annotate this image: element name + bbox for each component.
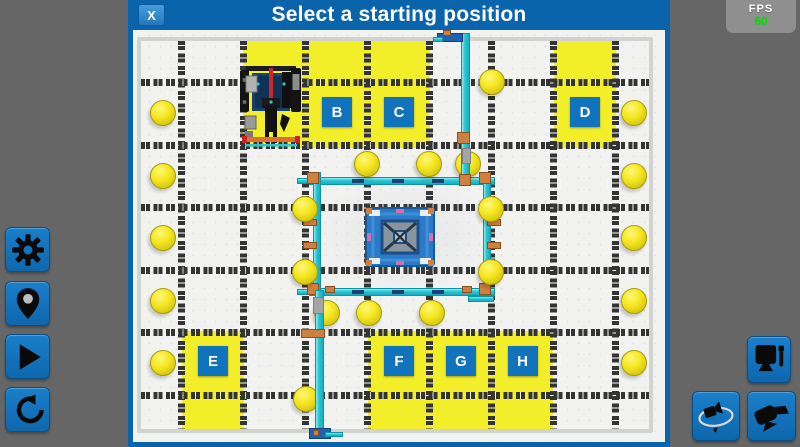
game-ball-1 (150, 163, 176, 189)
gear-icon (10, 232, 46, 268)
grid-line-horizontal-0 (141, 79, 649, 86)
pole-connector-0 (457, 132, 470, 144)
game-ball-7 (621, 225, 647, 251)
close-button[interactable]: X (138, 4, 165, 26)
play-icon (10, 339, 46, 375)
frame-clip-4 (392, 290, 404, 294)
center-goal-platform (365, 207, 435, 267)
side-camera-button[interactable] (747, 391, 796, 441)
game-ball-20 (419, 300, 445, 326)
pin-icon (10, 286, 46, 322)
app-background: X Select a starting position BCDEFGH FPS… (0, 0, 800, 447)
game-ball-14 (292, 196, 318, 222)
grid-line-horizontal-5 (141, 392, 649, 399)
play-button[interactable] (5, 334, 50, 379)
game-ball-19 (356, 300, 382, 326)
start-tile-label-D[interactable]: D (570, 97, 600, 127)
frame-connector-5 (303, 242, 317, 249)
game-ball-0 (150, 100, 176, 126)
dialog-title-bar: X Select a starting position (128, 0, 670, 30)
game-ball-10 (479, 69, 505, 95)
fps-panel: FPS 60 (726, 0, 796, 33)
frame-clip-1 (392, 179, 404, 183)
frame-clip-5 (432, 290, 444, 294)
frame-connector-8 (325, 286, 335, 293)
grid-line-horizontal-4 (141, 329, 649, 336)
game-ball-8 (621, 288, 647, 314)
start-tile-label-G[interactable]: G (446, 346, 476, 376)
game-ball-16 (292, 259, 318, 285)
game-ball-6 (621, 163, 647, 189)
orbit-camera-button[interactable] (692, 391, 740, 441)
game-ball-17 (478, 259, 504, 285)
dialog-title: Select a starting position (272, 3, 527, 27)
grid-line-vertical-7 (612, 41, 619, 429)
frame-connector-7 (487, 242, 501, 249)
monitor-icon (750, 341, 788, 379)
game-ball-5 (621, 100, 647, 126)
frame-connector-1 (479, 172, 491, 184)
game-ball-12 (416, 151, 442, 177)
start-position-dialog: X Select a starting position BCDEFGH (128, 0, 670, 447)
start-tile-label-H[interactable]: H (508, 346, 538, 376)
start-tile-label-F[interactable]: F (384, 346, 414, 376)
pole-connector-4 (443, 30, 451, 36)
frame-clip-3 (352, 290, 364, 294)
grid-line-vertical-6 (550, 41, 557, 429)
settings-button[interactable] (5, 227, 50, 272)
game-ball-3 (150, 288, 176, 314)
pole-spacer-1 (462, 148, 471, 164)
frame-clip-0 (352, 179, 364, 183)
start-tile-label-E[interactable]: E (198, 346, 228, 376)
pole-spacer-0 (313, 297, 324, 314)
pole-connector-3 (313, 430, 319, 436)
reset-button[interactable] (5, 387, 50, 432)
frame-clip-2 (432, 179, 444, 183)
game-ball-4 (150, 350, 176, 376)
frame-connector-9 (462, 286, 472, 293)
field-view[interactable]: BCDEFGH (133, 30, 665, 442)
robot-top-view (238, 64, 304, 148)
goal-frame-beam-4 (468, 296, 494, 302)
game-ball-15 (478, 196, 504, 222)
start-tile-label-B[interactable]: B (322, 97, 352, 127)
game-ball-11 (354, 151, 380, 177)
orbit-camera-icon (695, 395, 737, 437)
pole-fin-0 (433, 37, 443, 42)
game-ball-9 (621, 350, 647, 376)
grid-line-vertical-0 (178, 41, 185, 429)
frame-connector-0 (307, 172, 319, 184)
pole-fin-1 (325, 432, 343, 437)
video-camera-icon (751, 395, 793, 437)
robot-view-button[interactable] (747, 336, 791, 383)
start-tile-label-C[interactable]: C (384, 97, 414, 127)
starting-position-button[interactable] (5, 281, 50, 326)
pole-connector-1 (459, 174, 471, 186)
fps-value: 60 (726, 15, 796, 28)
grid-line-horizontal-1 (141, 142, 649, 149)
game-ball-2 (150, 225, 176, 251)
reset-icon (10, 392, 46, 428)
pole-connector-2 (301, 329, 325, 338)
